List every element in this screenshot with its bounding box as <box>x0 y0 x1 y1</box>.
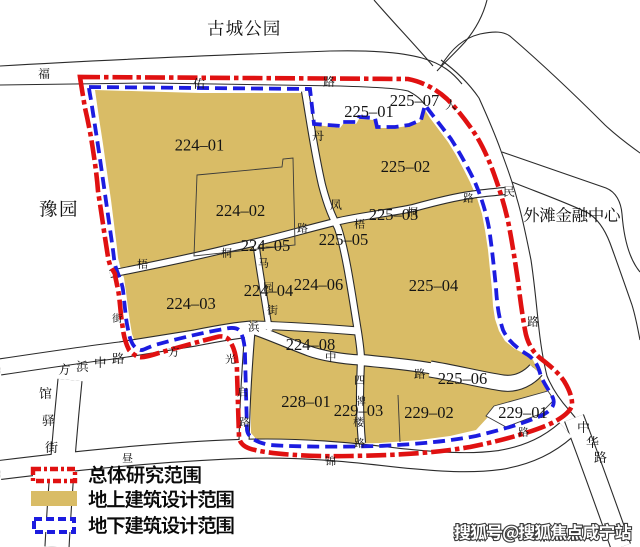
svg-text:224–02: 224–02 <box>216 201 266 220</box>
svg-text:224–05: 224–05 <box>241 236 291 255</box>
svg-text:229–01: 229–01 <box>498 403 548 422</box>
svg-text:224–08: 224–08 <box>286 335 336 354</box>
svg-text:225–01: 225–01 <box>344 102 394 121</box>
svg-text:228–01: 228–01 <box>281 392 331 411</box>
svg-text:225–04: 225–04 <box>409 276 459 295</box>
svg-text:225–05: 225–05 <box>319 230 369 249</box>
svg-text:224–01: 224–01 <box>175 136 225 155</box>
svg-text:225–06: 225–06 <box>438 369 488 388</box>
svg-text:229–02: 229–02 <box>404 403 454 422</box>
svg-text:225–03: 225–03 <box>369 205 419 224</box>
svg-text:224–03: 224–03 <box>166 294 216 313</box>
svg-text:225–07: 225–07 <box>390 91 440 110</box>
svg-text:225–02: 225–02 <box>381 157 431 176</box>
svg-text:224–04: 224–04 <box>244 281 294 300</box>
svg-text:224–06: 224–06 <box>294 275 344 294</box>
